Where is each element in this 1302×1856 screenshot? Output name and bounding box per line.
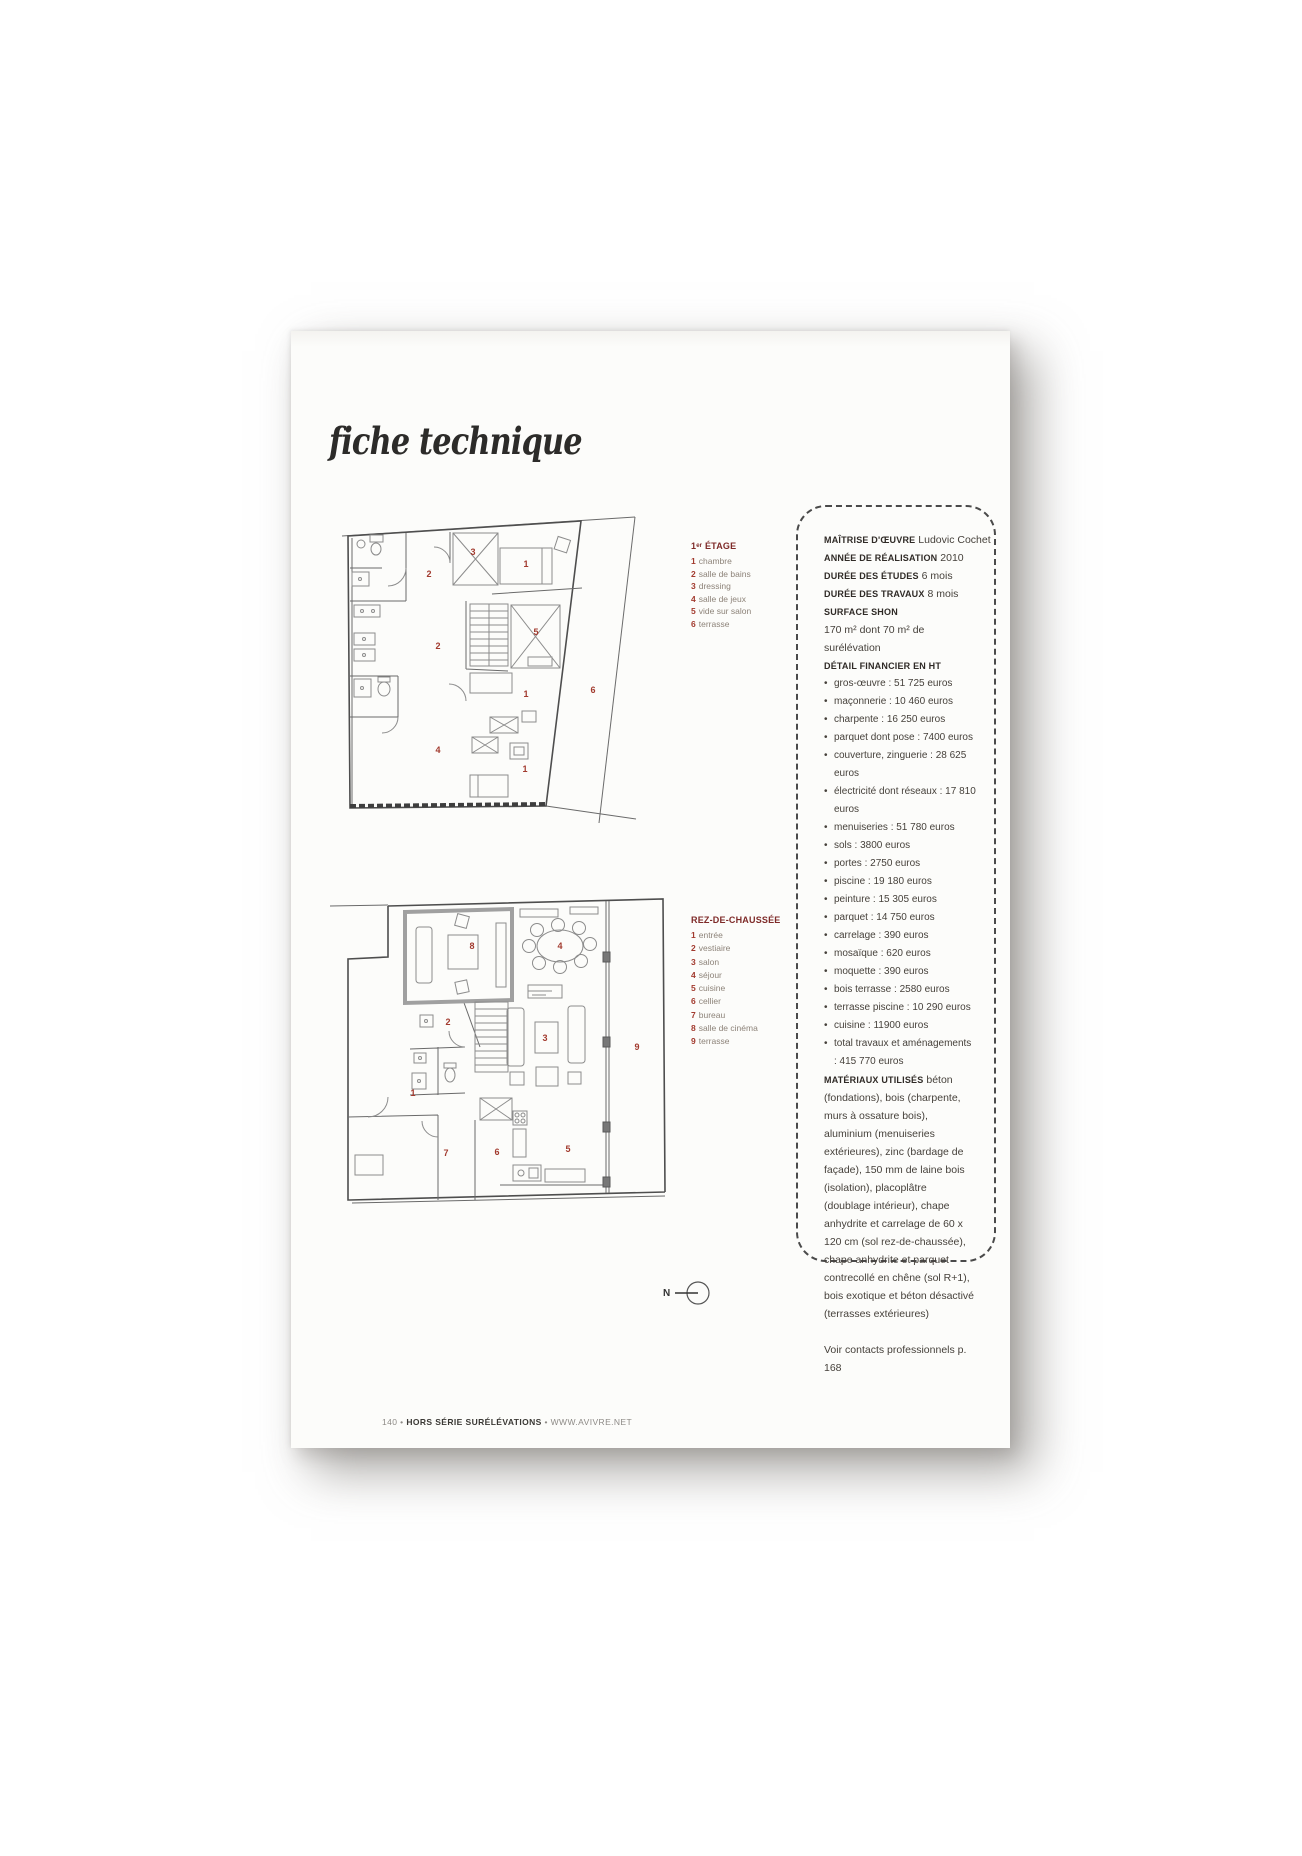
materials-text: béton (fondations), bois (charpente, mur… bbox=[824, 1074, 974, 1320]
room-number: 1 bbox=[522, 764, 527, 774]
info-label: MAÎTRISE D'ŒUVRE bbox=[824, 535, 915, 545]
legend-item: 7bureau bbox=[691, 1009, 806, 1022]
legend-item-label: vide sur salon bbox=[699, 606, 751, 616]
cost-item: cuisine : 11900 euros bbox=[824, 1017, 976, 1035]
financial-heading: DÉTAIL FINANCIER EN HT bbox=[824, 657, 976, 675]
info-label: DÉTAIL FINANCIER EN HT bbox=[824, 661, 941, 671]
legend-item: 2vestiaire bbox=[691, 942, 806, 955]
room-number: 1 bbox=[410, 1088, 415, 1098]
cost-item: carrelage : 390 euros bbox=[824, 927, 976, 945]
legend-item-number: 5 bbox=[691, 983, 696, 993]
legend-item: 1entrée bbox=[691, 929, 806, 942]
legend-item: 5vide sur salon bbox=[691, 605, 806, 618]
legend-item-number: 6 bbox=[691, 619, 696, 629]
room-number: 5 bbox=[533, 627, 538, 637]
info-label: DURÉE DES ÉTUDES bbox=[824, 571, 919, 581]
floor-plan-first-floor: 3 1 2 5 2 1 6 4 1 bbox=[340, 505, 640, 825]
info-value: 6 mois bbox=[922, 570, 953, 582]
legend-item-label: salon bbox=[699, 957, 719, 967]
cost-item: maçonnerie : 10 460 euros bbox=[824, 693, 976, 711]
scanned-magazine-page: fiche technique bbox=[0, 0, 1302, 1856]
info-label: ANNÉE DE RÉALISATION bbox=[824, 553, 937, 563]
legend-item-number: 5 bbox=[691, 606, 696, 616]
legend-item: 4séjour bbox=[691, 969, 806, 982]
legend-item-label: chambre bbox=[699, 556, 732, 566]
room-number: 8 bbox=[469, 941, 474, 951]
floor-plan-ground-floor: 8 4 2 3 1 7 6 5 9 bbox=[330, 897, 670, 1209]
room-number: 3 bbox=[470, 547, 475, 557]
legend-heading: 1ᵉʳ ÉTAGE bbox=[691, 541, 806, 551]
legend-item-number: 8 bbox=[691, 1023, 696, 1033]
cost-item: électricité dont réseaux : 17 810 euros bbox=[824, 783, 976, 819]
legend-item-label: terrasse bbox=[699, 619, 730, 629]
room-number: 1 bbox=[523, 559, 528, 569]
paper-sheet: fiche technique bbox=[291, 331, 1010, 1448]
room-number: 1 bbox=[523, 689, 528, 699]
info-meta-line: SURFACE SHON bbox=[824, 603, 976, 621]
plan1-terrace-edge bbox=[350, 804, 546, 806]
north-label: N bbox=[663, 1288, 670, 1299]
cost-item: charpente : 16 250 euros bbox=[824, 711, 976, 729]
legend-list: 1entrée 2vestiaire 3salon 4séjour 5cuisi… bbox=[691, 929, 806, 1049]
room-number: 2 bbox=[435, 641, 440, 651]
legend-item-number: 2 bbox=[691, 943, 696, 953]
legend-ground-floor: REZ-DE-CHAUSSÉE 1entrée 2vestiaire 3salo… bbox=[691, 915, 806, 1049]
footer-website: WWW.AVIVRE.NET bbox=[551, 1417, 632, 1427]
legend-item-label: dressing bbox=[699, 581, 731, 591]
info-value: Ludovic Cochet bbox=[918, 534, 990, 546]
info-meta-line: ANNÉE DE RÉALISATION 2010 bbox=[824, 549, 976, 567]
contacts-note: Voir contacts professionnels p. 168 bbox=[824, 1341, 976, 1377]
legend-item: 8salle de cinéma bbox=[691, 1022, 806, 1035]
footer-magazine-title: HORS SÉRIE SURÉLÉVATIONS bbox=[406, 1417, 541, 1427]
room-number: 6 bbox=[590, 685, 595, 695]
legend-item: 6cellier bbox=[691, 995, 806, 1008]
room-number: 2 bbox=[445, 1017, 450, 1027]
plan1-walls bbox=[348, 521, 582, 808]
legend-item: 6terrasse bbox=[691, 618, 806, 631]
cost-item: menuiseries : 51 780 euros bbox=[824, 819, 976, 837]
legend-item-label: salle de jeux bbox=[699, 594, 746, 604]
legend-item-number: 7 bbox=[691, 1010, 696, 1020]
legend-item: 3salon bbox=[691, 956, 806, 969]
legend-item-number: 2 bbox=[691, 569, 696, 579]
legend-item-number: 3 bbox=[691, 581, 696, 591]
info-meta-line: DURÉE DES ÉTUDES 6 mois bbox=[824, 567, 976, 585]
cost-item: mosaïque : 620 euros bbox=[824, 945, 976, 963]
room-number: 7 bbox=[443, 1148, 448, 1158]
footer-separator: • bbox=[400, 1417, 403, 1427]
technical-info-box: MAÎTRISE D'ŒUVRE Ludovic Cochet ANNÉE DE… bbox=[796, 505, 996, 1262]
cost-item: moquette : 390 euros bbox=[824, 963, 976, 981]
legend-item: 2salle de bains bbox=[691, 568, 806, 581]
room-number: 5 bbox=[565, 1144, 570, 1154]
cost-item: portes : 2750 euros bbox=[824, 855, 976, 873]
legend-item-number: 1 bbox=[691, 930, 696, 940]
cost-item: piscine : 19 180 euros bbox=[824, 873, 976, 891]
legend-item-number: 1 bbox=[691, 556, 696, 566]
legend-item-number: 3 bbox=[691, 957, 696, 967]
info-value: 8 mois bbox=[928, 588, 959, 600]
cost-item: gros-œuvre : 51 725 euros bbox=[824, 675, 976, 693]
legend-item-label: salle de bains bbox=[699, 569, 751, 579]
cost-item: total travaux et aménagements : 415 770 … bbox=[824, 1035, 976, 1071]
info-meta-line: MAÎTRISE D'ŒUVRE Ludovic Cochet bbox=[824, 531, 976, 549]
room-number: 4 bbox=[557, 941, 562, 951]
info-meta-line: DURÉE DES TRAVAUX 8 mois bbox=[824, 585, 976, 603]
cost-item: parquet : 14 750 euros bbox=[824, 909, 976, 927]
cost-item: bois terrasse : 2580 euros bbox=[824, 981, 976, 999]
legend-first-floor: 1ᵉʳ ÉTAGE 1chambre 2salle de bains 3dres… bbox=[691, 541, 806, 631]
footer-separator: • bbox=[544, 1417, 547, 1427]
legend-item-number: 9 bbox=[691, 1036, 696, 1046]
cost-item: peinture : 15 305 euros bbox=[824, 891, 976, 909]
legend-item-label: cuisine bbox=[699, 983, 725, 993]
info-label: SURFACE SHON bbox=[824, 607, 898, 617]
legend-item-number: 6 bbox=[691, 996, 696, 1006]
legend-item: 1chambre bbox=[691, 555, 806, 568]
legend-heading: REZ-DE-CHAUSSÉE bbox=[691, 915, 806, 925]
room-number: 2 bbox=[426, 569, 431, 579]
room-number: 9 bbox=[634, 1042, 639, 1052]
legend-item-label: séjour bbox=[699, 970, 722, 980]
room-number: 3 bbox=[542, 1033, 547, 1043]
legend-list: 1chambre 2salle de bains 3dressing 4sall… bbox=[691, 555, 806, 631]
materials-paragraph: MATÉRIAUX UTILISÉS béton (fondations), b… bbox=[824, 1071, 976, 1323]
legend-item-label: terrasse bbox=[699, 1036, 730, 1046]
legend-item: 5cuisine bbox=[691, 982, 806, 995]
cost-item: parquet dont pose : 7400 euros bbox=[824, 729, 976, 747]
page-footer: 140 • HORS SÉRIE SURÉLÉVATIONS • WWW.AVI… bbox=[382, 1417, 632, 1427]
page-title: fiche technique bbox=[329, 419, 582, 463]
info-value: 2010 bbox=[940, 552, 963, 564]
legend-item: 3dressing bbox=[691, 580, 806, 593]
footer-page-number: 140 bbox=[382, 1417, 397, 1427]
info-label: DURÉE DES TRAVAUX bbox=[824, 589, 925, 599]
cost-item: terrasse piscine : 10 290 euros bbox=[824, 999, 976, 1017]
legend-item-label: vestiaire bbox=[699, 943, 731, 953]
legend-item-label: entrée bbox=[699, 930, 723, 940]
surface-detail: 170 m² dont 70 m² de surélévation bbox=[824, 621, 976, 657]
legend-item-number: 4 bbox=[691, 970, 696, 980]
legend-item: 4salle de jeux bbox=[691, 593, 806, 606]
legend-item-label: salle de cinéma bbox=[699, 1023, 758, 1033]
room-number: 6 bbox=[494, 1147, 499, 1157]
cost-item: couverture, zinguerie : 28 625 euros bbox=[824, 747, 976, 783]
legend-item-label: cellier bbox=[699, 996, 721, 1006]
legend-item: 9terrasse bbox=[691, 1035, 806, 1048]
north-indicator: N bbox=[663, 1279, 712, 1307]
plan1-furniture bbox=[352, 533, 571, 797]
legend-item-number: 4 bbox=[691, 594, 696, 604]
room-number: 4 bbox=[435, 745, 440, 755]
legend-item-label: bureau bbox=[699, 1010, 725, 1020]
materials-label: MATÉRIAUX UTILISÉS bbox=[824, 1075, 923, 1085]
north-arrow-icon bbox=[672, 1279, 712, 1307]
cost-item: sols : 3800 euros bbox=[824, 837, 976, 855]
